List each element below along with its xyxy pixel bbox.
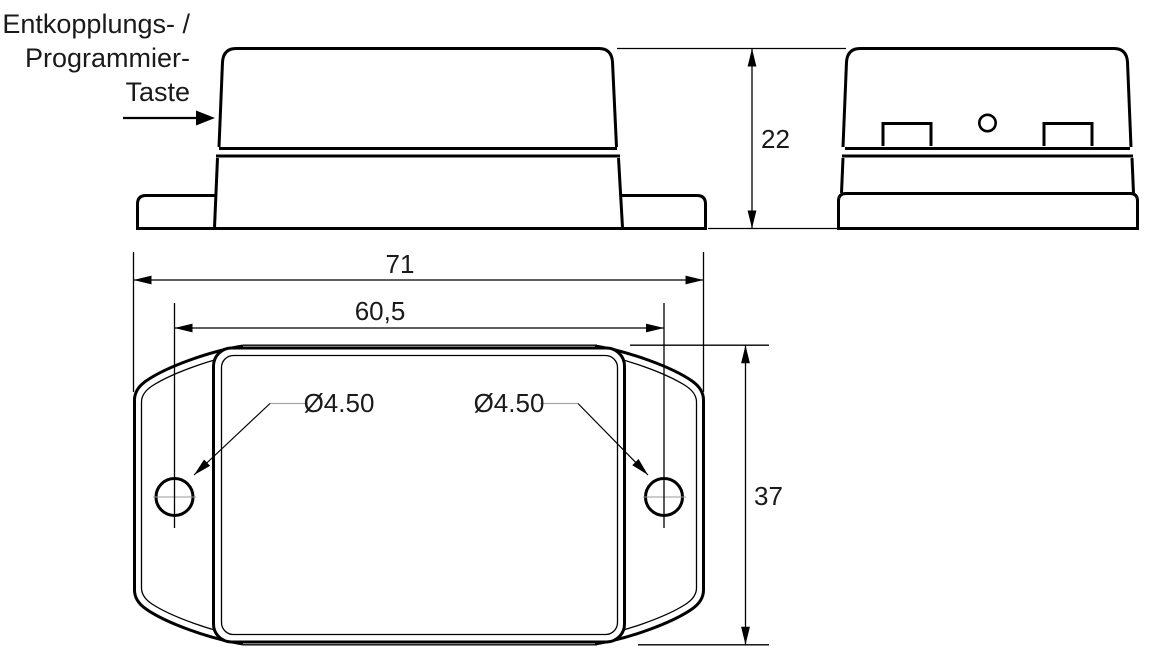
top-outline-outer — [214, 348, 625, 642]
button-pointer-arrowhead — [196, 111, 215, 126]
front-flange-right — [620, 196, 706, 228]
button-annotation: Entkopplungs- / Programmier- Taste — [2, 9, 215, 126]
top-view — [135, 345, 704, 645]
side-pilot-hole — [979, 115, 995, 131]
dimension-label-71: 71 — [386, 249, 415, 279]
dimension-label-22: 22 — [761, 124, 790, 154]
side-body-right-edge — [1132, 158, 1134, 193]
side-view — [837, 49, 1139, 229]
front-lid — [219, 49, 617, 148]
technical-drawing-canvas: Entkopplungs- / Programmier- Taste 22 — [0, 0, 1149, 664]
hole-diameter-label-right: Ø4.50 — [474, 388, 545, 418]
front-body-left-edge — [215, 158, 218, 228]
front-flange-left — [138, 196, 218, 228]
dimension-label-60-5: 60,5 — [355, 296, 406, 326]
side-tab-left — [883, 124, 931, 147]
hole-diameter-label-left: Ø4.50 — [304, 388, 375, 418]
dimension-label-37: 37 — [754, 481, 783, 511]
front-view — [136, 49, 707, 229]
technical-drawing-page: Entkopplungs- / Programmier- Taste 22 — [0, 0, 1149, 664]
side-body-left-edge — [842, 158, 844, 193]
side-flange-bar — [839, 194, 1138, 228]
annotation-line-3: Taste — [125, 77, 190, 107]
annotation-line-1: Entkopplungs- / — [2, 9, 190, 39]
dimension-height-22: 22 — [617, 49, 846, 229]
side-tab-right — [1044, 124, 1092, 147]
front-body-right-edge — [619, 158, 623, 228]
annotation-line-2: Programmier- — [25, 43, 190, 73]
